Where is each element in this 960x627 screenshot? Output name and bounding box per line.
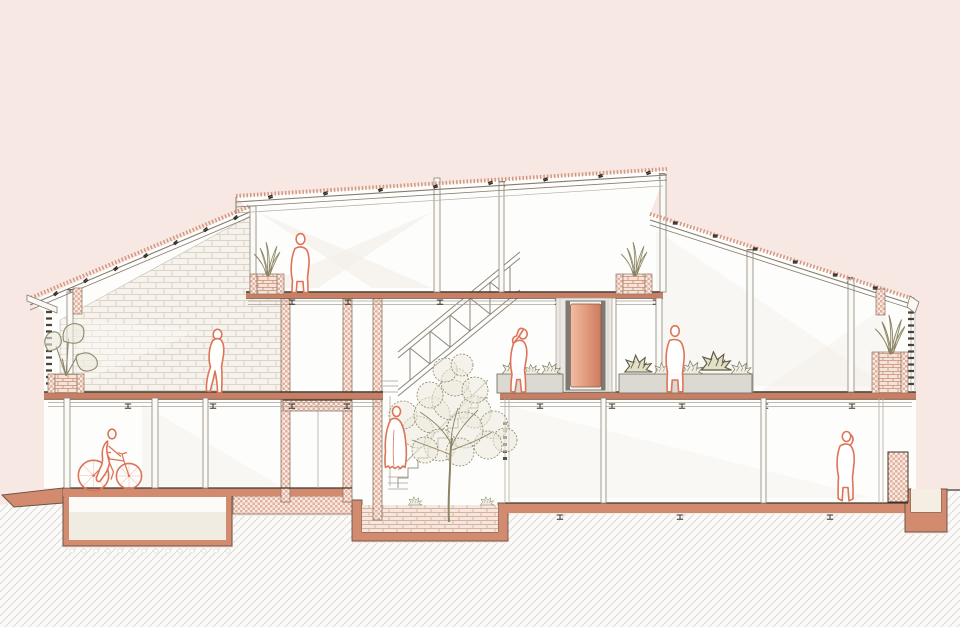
post [499, 182, 504, 292]
post [203, 398, 208, 488]
post [660, 174, 666, 292]
bridge-slab [283, 400, 352, 411]
left-eave-block [73, 288, 82, 314]
ground-slab-right [505, 504, 908, 514]
left-floor-band [63, 488, 352, 496]
core-wall-c [373, 298, 382, 520]
door-wall-panel [556, 298, 612, 392]
architectural-section-drawing [0, 0, 960, 627]
pink-sliding-door [571, 304, 602, 387]
gray-planter-bench [619, 374, 752, 393]
gray-planter-bench [497, 374, 563, 393]
post [848, 279, 854, 392]
right-grade-pillar [888, 452, 908, 502]
right-eave-block [876, 289, 885, 315]
post [761, 398, 766, 503]
post [601, 398, 606, 503]
post [152, 398, 158, 488]
foundation-band [233, 496, 352, 514]
post [64, 398, 70, 488]
post [434, 178, 440, 292]
